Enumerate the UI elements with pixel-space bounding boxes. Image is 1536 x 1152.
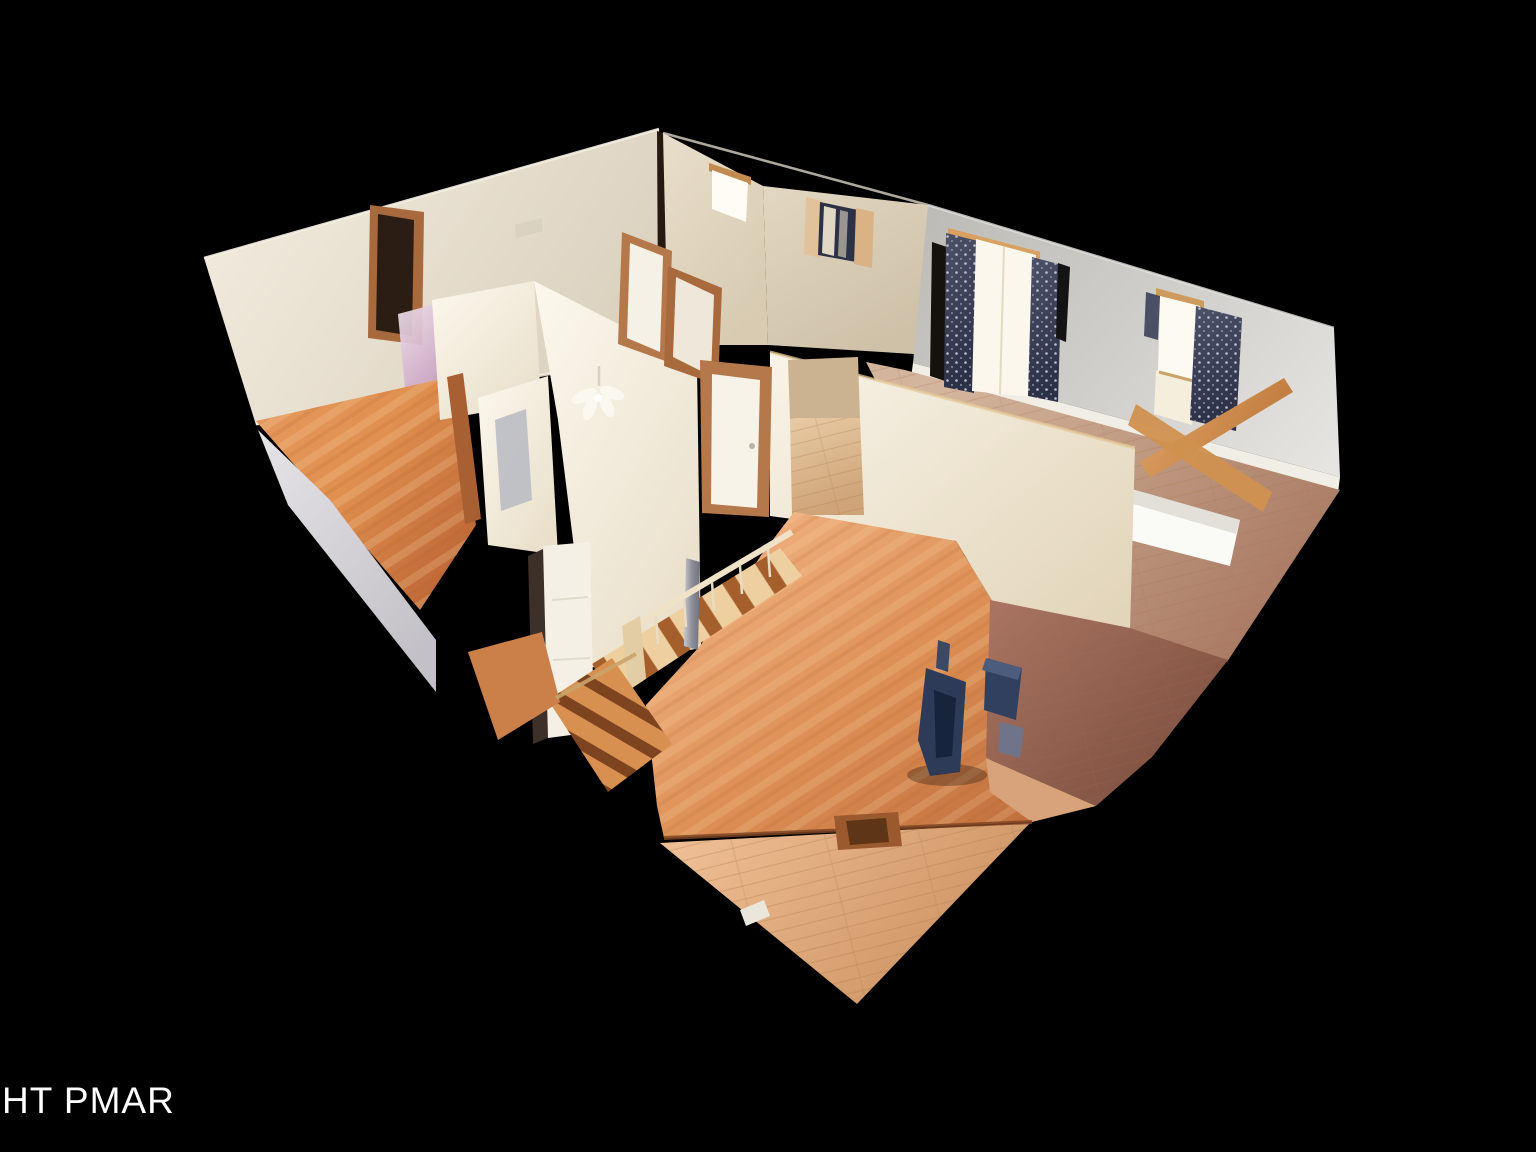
stove-pipe: [936, 640, 950, 672]
dollhouse-3d-viewport[interactable]: HT PMAR: [0, 0, 1536, 1152]
hall-opening-floor-planks: [790, 418, 864, 515]
hall-opening-far-wall: [788, 357, 860, 420]
copyright-watermark: HT PMAR: [2, 1082, 175, 1119]
dollhouse-render: [0, 0, 1536, 1152]
hall-door-1: [627, 243, 663, 352]
foyer-door: [711, 374, 760, 508]
mirror-panel: [495, 409, 532, 511]
hearth-block: [998, 722, 1024, 758]
deck-doorway-inner: [846, 818, 889, 845]
window-light-slat: [822, 206, 836, 256]
metal-support-post: [684, 558, 700, 650]
deck-planks-texture: [660, 823, 1030, 1004]
window2-curtain-left: [1144, 292, 1160, 340]
curtain-right-tan: [854, 208, 874, 268]
foyer-door-knob: [749, 443, 755, 449]
